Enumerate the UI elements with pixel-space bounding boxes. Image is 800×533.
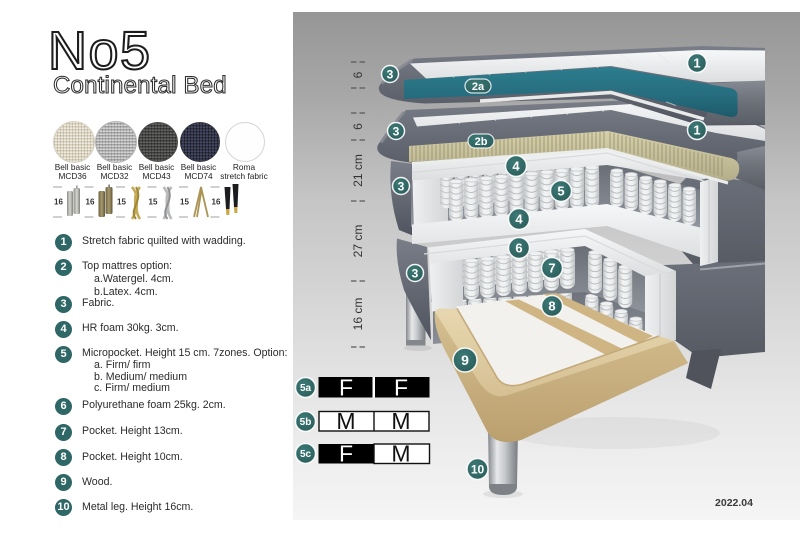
svg-text:2a: 2a — [472, 81, 485, 93]
svg-text:5b: 5b — [300, 417, 312, 428]
svg-text:4: 4 — [512, 159, 520, 174]
svg-text:3: 3 — [393, 124, 400, 138]
svg-text:27 cm: 27 cm — [351, 225, 365, 258]
svg-text:5a: 5a — [300, 383, 312, 394]
svg-text:10: 10 — [471, 462, 485, 476]
svg-text:2022.04: 2022.04 — [715, 497, 753, 509]
svg-text:2b: 2b — [475, 136, 488, 148]
svg-text:3: 3 — [398, 179, 405, 193]
svg-text:7: 7 — [548, 261, 555, 276]
svg-text:6: 6 — [351, 71, 365, 78]
svg-text:F: F — [339, 441, 353, 467]
svg-text:4: 4 — [515, 212, 523, 227]
svg-text:5c: 5c — [300, 449, 312, 460]
svg-text:16 cm: 16 cm — [351, 298, 365, 331]
svg-text:3: 3 — [412, 266, 419, 280]
svg-text:5: 5 — [557, 184, 564, 199]
svg-text:1: 1 — [693, 123, 700, 138]
svg-text:21 cm: 21 cm — [351, 154, 365, 187]
svg-text:6: 6 — [515, 241, 522, 256]
svg-text:F: F — [394, 375, 408, 401]
svg-text:3: 3 — [387, 67, 394, 81]
svg-text:6: 6 — [351, 123, 365, 130]
svg-text:M: M — [391, 408, 410, 434]
svg-text:M: M — [391, 441, 410, 467]
svg-text:F: F — [339, 375, 353, 401]
svg-text:1: 1 — [693, 56, 700, 71]
svg-text:8: 8 — [548, 299, 555, 314]
svg-text:M: M — [336, 408, 355, 434]
svg-text:9: 9 — [461, 352, 469, 368]
